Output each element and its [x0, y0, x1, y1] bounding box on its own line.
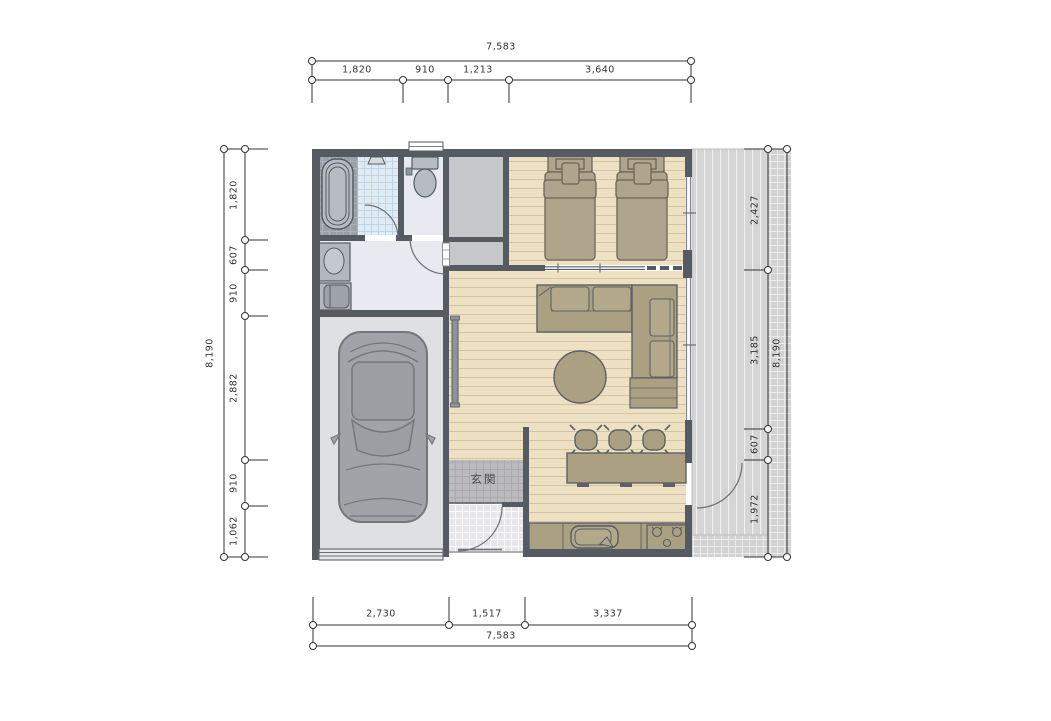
car [331, 332, 435, 522]
dim-left-seg-5: 910 [229, 473, 240, 493]
entrance-label: 玄関 [471, 471, 498, 487]
dim-right-seg-4: 1,972 [750, 494, 761, 524]
dim-right-seg-3: 607 [750, 434, 761, 454]
bar-stool [570, 425, 602, 455]
bath-shelf [368, 157, 385, 164]
bar-stool [604, 425, 636, 455]
window [409, 142, 443, 151]
dim-right-seg-2: 3,185 [750, 335, 761, 365]
dim-left-seg-2: 607 [229, 245, 240, 265]
porch-tile [449, 503, 523, 553]
dim-left-seg-4: 2,882 [229, 373, 240, 403]
washing-machine [319, 283, 351, 310]
dim-top-seg-1: 1,820 [342, 65, 372, 76]
bathtub [322, 159, 353, 229]
dim-left-total: 8,190 [205, 338, 216, 368]
dim-right-total: 8,190 [772, 338, 783, 368]
dim-top-seg-3: 1,213 [463, 65, 493, 76]
dim-bottom-total: 7,583 [486, 631, 516, 642]
bar-counter [567, 453, 686, 487]
dim-left-seg-3: 910 [229, 283, 240, 303]
floor-plan-canvas: 7,583 1,820 910 1,213 3,640 2,730 1,517 … [0, 0, 1051, 721]
dim-bottom-seg-2: 1,517 [472, 609, 502, 620]
bar-stool [638, 425, 670, 455]
stove [647, 525, 686, 551]
dim-bottom-seg-1: 2,730 [366, 609, 396, 620]
dim-right-seg-1: 2,427 [750, 195, 761, 225]
dim-top-total: 7,583 [486, 42, 516, 53]
garage-door [319, 549, 443, 560]
dim-top-seg-4: 3,640 [585, 65, 615, 76]
bed [544, 156, 596, 260]
floor-plan-drawing [0, 0, 1051, 721]
dim-left-seg-1: 1,820 [229, 180, 240, 210]
side-shelf [630, 378, 677, 408]
vanity-sink [319, 243, 350, 281]
round-table [554, 351, 606, 403]
kitchen-sink [571, 526, 618, 548]
dim-left-seg-6: 1,062 [229, 516, 240, 546]
bed [616, 156, 668, 260]
hall-living-door [443, 243, 450, 266]
tv-board [451, 316, 460, 407]
dim-top-seg-2: 910 [415, 65, 435, 76]
dim-bottom-seg-3: 3,337 [593, 609, 623, 620]
